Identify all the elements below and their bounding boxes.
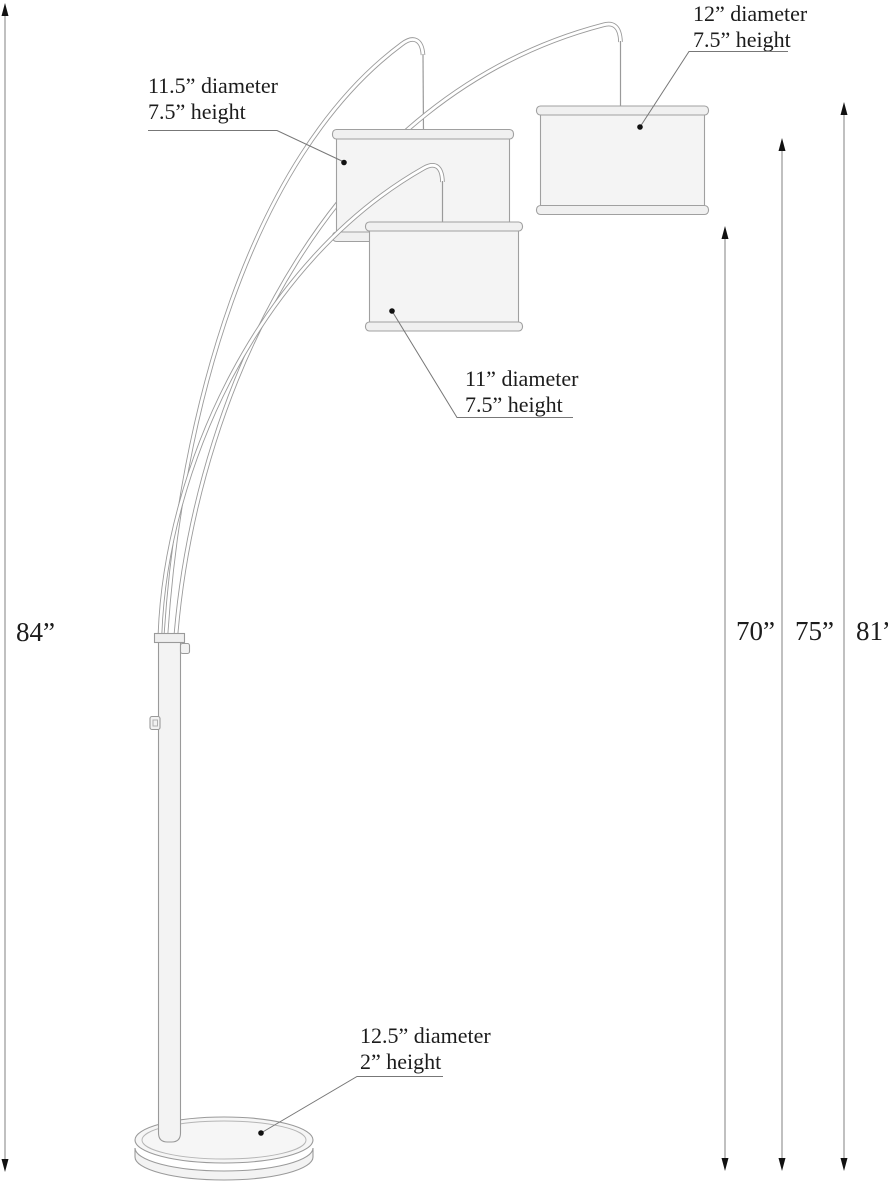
- diagram-canvas: 84” 70” 75” 81” 11.5” diameter 7.5” heig…: [0, 0, 888, 1185]
- dimension-label-84: 84”: [16, 617, 55, 647]
- leader-dot: [258, 1130, 264, 1136]
- dimmer-switch: [150, 717, 160, 730]
- arrowhead-down-icon: [722, 1158, 729, 1171]
- lamp-pole: [150, 634, 190, 1143]
- arrowhead-up-icon: [2, 3, 9, 16]
- callout-base-line1: 12.5” diameter: [360, 1023, 491, 1048]
- lamp-dimension-diagram: 84” 70” 75” 81” 11.5” diameter 7.5” heig…: [0, 0, 888, 1185]
- pole-collar: [155, 634, 185, 643]
- lamp-shade-right: [537, 106, 709, 215]
- dimension-label-81: 81”: [856, 616, 888, 646]
- arrowhead-up-icon: [722, 226, 729, 239]
- dimension-line-81: 81”: [841, 102, 888, 1171]
- callout-shade-right-line1: 12” diameter: [693, 1, 808, 26]
- leader-dot: [389, 308, 395, 314]
- arrowhead-down-icon: [779, 1158, 786, 1171]
- callout-shade-left-line2: 7.5” height: [148, 99, 246, 124]
- arrowhead-down-icon: [2, 1159, 9, 1172]
- arrowhead-up-icon: [841, 102, 848, 115]
- callout-base-line2: 2” height: [360, 1049, 441, 1074]
- dimension-line-75: 75”: [779, 138, 834, 1171]
- callout-shade-center-line2: 7.5” height: [465, 392, 563, 417]
- arc-arm-left-shade: [166, 40, 424, 634]
- lamp-shade-center: [366, 222, 523, 331]
- dimension-label-75: 75”: [795, 616, 834, 646]
- dimension-line-84: 84”: [2, 3, 55, 1172]
- callout-shade-right-line2: 7.5” height: [693, 27, 791, 52]
- callout-base: 12.5” diameter 2” height: [258, 1023, 491, 1136]
- callout-shade-left-line1: 11.5” diameter: [148, 73, 279, 98]
- arrowhead-down-icon: [841, 1158, 848, 1171]
- arrowhead-up-icon: [779, 138, 786, 151]
- pole-knob-right: [181, 644, 190, 654]
- dimension-label-70: 70”: [736, 616, 775, 646]
- callout-shade-center-line1: 11” diameter: [465, 366, 579, 391]
- hanger-wire-left-shade: [423, 54, 424, 134]
- callout-shade-left: 11.5” diameter 7.5” height: [148, 73, 347, 165]
- leader-dot: [341, 160, 347, 166]
- leader-dot: [637, 124, 643, 130]
- dimension-line-70: 70”: [722, 226, 775, 1171]
